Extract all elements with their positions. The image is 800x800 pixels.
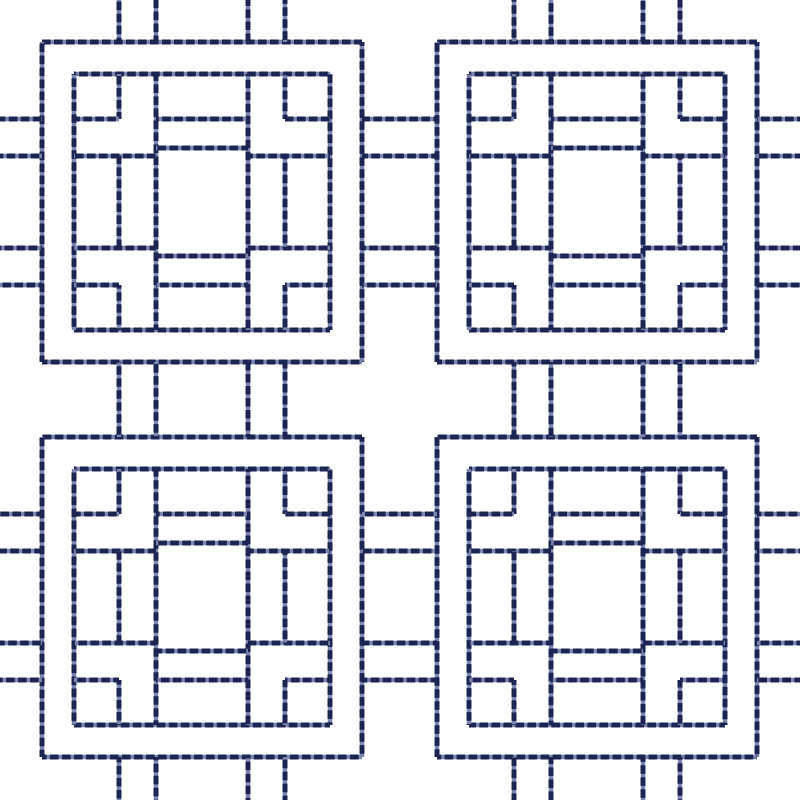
lattice-stitch-pattern-canvas xyxy=(0,0,800,800)
stitch-pattern-page xyxy=(0,0,800,800)
